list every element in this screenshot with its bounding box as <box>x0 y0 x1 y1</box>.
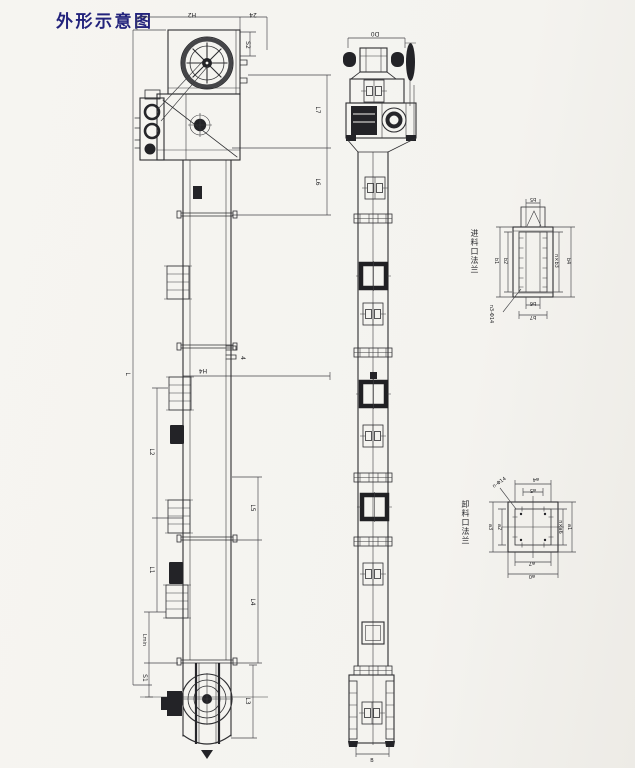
front-head <box>343 43 416 152</box>
dim-label-s1: S1 <box>141 674 148 682</box>
dim-label-l6: L6 <box>314 178 321 185</box>
dim-label-a1: a1 <box>566 524 572 530</box>
dim-label-l5: L5 <box>249 504 256 511</box>
dim-label-a5: a5 <box>530 487 536 493</box>
dim-label-inlet-holes: n3-Φ14 <box>488 305 494 323</box>
bucket-elevator-outline-drawing: H2 24 S2 L7 L6 H4 4 L L2 L1 Lmin S1 L5 L… <box>0 0 635 768</box>
dim-label-b6: b6 <box>530 300 536 306</box>
front-view: D0 B <box>343 30 416 764</box>
dim-label-outlet-holes: n-Φ14 <box>492 476 508 490</box>
dim-label-l: L <box>124 372 131 376</box>
dim-label-a2: a2 <box>496 524 502 530</box>
dim-label-4: 4 <box>239 356 246 360</box>
dim-label-l1: L1 <box>148 566 155 573</box>
scanned-drawing-page: 外形示意图 进料口法兰 卸料口法兰 <box>0 0 635 768</box>
inlet-flange-structure <box>513 207 553 297</box>
dim-label-24: 24 <box>249 11 257 18</box>
dim-label-b1: b1 <box>493 258 499 264</box>
dim-label-b4: b4 <box>565 258 571 264</box>
outlet-flange-structure <box>502 496 564 558</box>
head-pulley <box>181 37 233 89</box>
dim-label-a6: n×a6 <box>557 520 563 534</box>
dim-label-lmin: Lmin <box>141 634 147 646</box>
dim-label-d0: D0 <box>371 30 380 37</box>
dim-label-l3: L3 <box>244 697 251 704</box>
dim-label-l7: L7 <box>314 106 321 113</box>
dim-label-b3: n×b3 <box>553 254 559 268</box>
front-boot <box>348 675 395 747</box>
dim-label-a4: a4 <box>533 476 539 482</box>
dim-label-a0: a0 <box>529 573 535 579</box>
boot-section <box>161 663 233 759</box>
side-casing <box>163 160 237 665</box>
dim-label-h4: H4 <box>199 367 208 374</box>
front-view-dimensions <box>348 38 405 757</box>
dim-label-b7: b7 <box>530 314 536 320</box>
head-section <box>135 30 247 199</box>
dim-label-b: B <box>370 758 374 764</box>
dim-label-a3: a3 <box>487 524 493 530</box>
handwheel <box>406 43 415 81</box>
motor-block <box>351 106 377 135</box>
position-mark <box>188 113 212 137</box>
outlet-flange-detail: a4 a5 a3 a2 n×a6 a1 a7 a0 n-Φ14 <box>487 476 576 579</box>
dim-label-l2: L2 <box>148 448 155 455</box>
dim-label-b5: b5 <box>530 196 536 202</box>
inlet-flange-detail: b1 b2 n×b3 b4 b5 b6 b7 n3-Φ14 <box>488 196 575 323</box>
side-view-dimensions <box>133 17 331 738</box>
dim-label-l4: L4 <box>249 598 256 605</box>
lifting-lug-right <box>391 52 404 67</box>
dim-label-s2: S2 <box>244 41 251 49</box>
dim-label-a7: a7 <box>529 560 535 566</box>
dim-label-h2: H2 <box>188 11 197 18</box>
side-view: H2 24 S2 L7 L6 H4 4 L L2 L1 Lmin S1 L5 L… <box>124 11 331 759</box>
front-casing <box>354 152 392 745</box>
dim-label-b2: b2 <box>502 258 508 264</box>
lifting-lug-left <box>343 52 356 67</box>
